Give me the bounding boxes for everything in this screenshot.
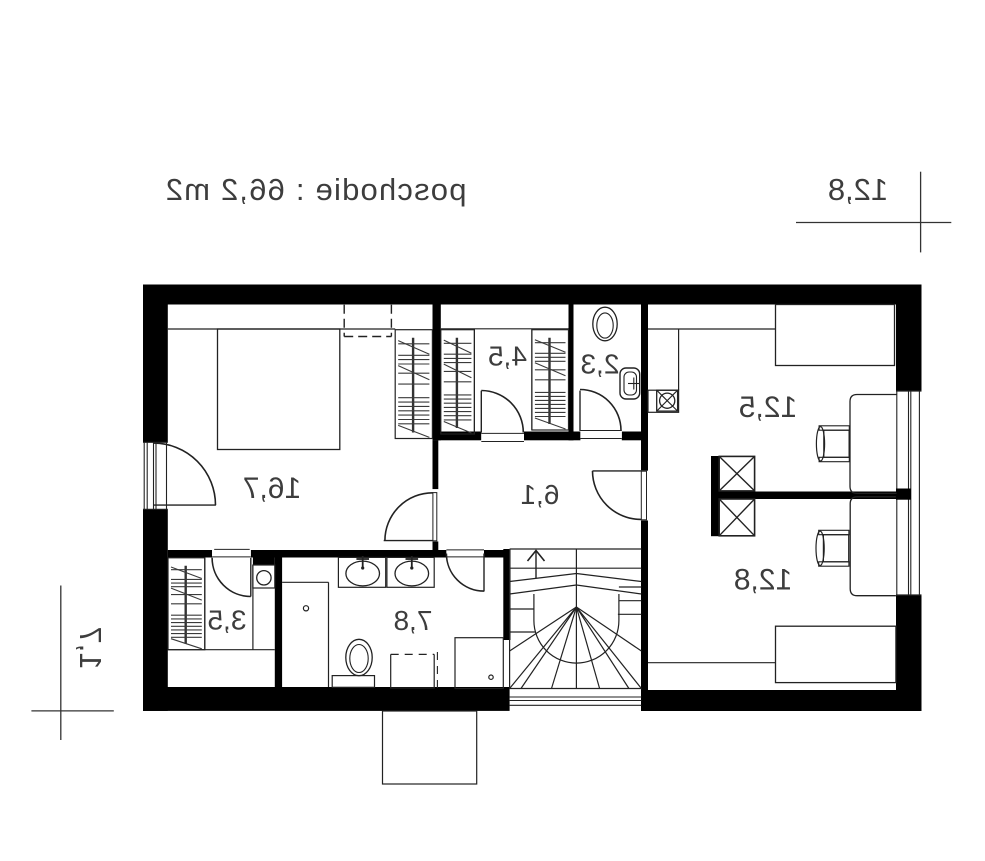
svg-text:3,5: 3,5 xyxy=(208,604,247,635)
svg-text:12,8: 12,8 xyxy=(734,563,792,596)
svg-text:2,3: 2,3 xyxy=(581,348,620,379)
svg-text:12,8: 12,8 xyxy=(828,172,888,207)
svg-text:16,7: 16,7 xyxy=(243,472,301,505)
svg-text:6,1: 6,1 xyxy=(521,479,560,510)
svg-text:4,5: 4,5 xyxy=(488,340,527,371)
svg-text:1,7: 1,7 xyxy=(73,626,108,669)
svg-text:7,8: 7,8 xyxy=(394,605,433,636)
svg-text:12,5: 12,5 xyxy=(739,391,797,424)
svg-text:poschodie : 66,2 m2: poschodie : 66,2 m2 xyxy=(165,172,467,207)
